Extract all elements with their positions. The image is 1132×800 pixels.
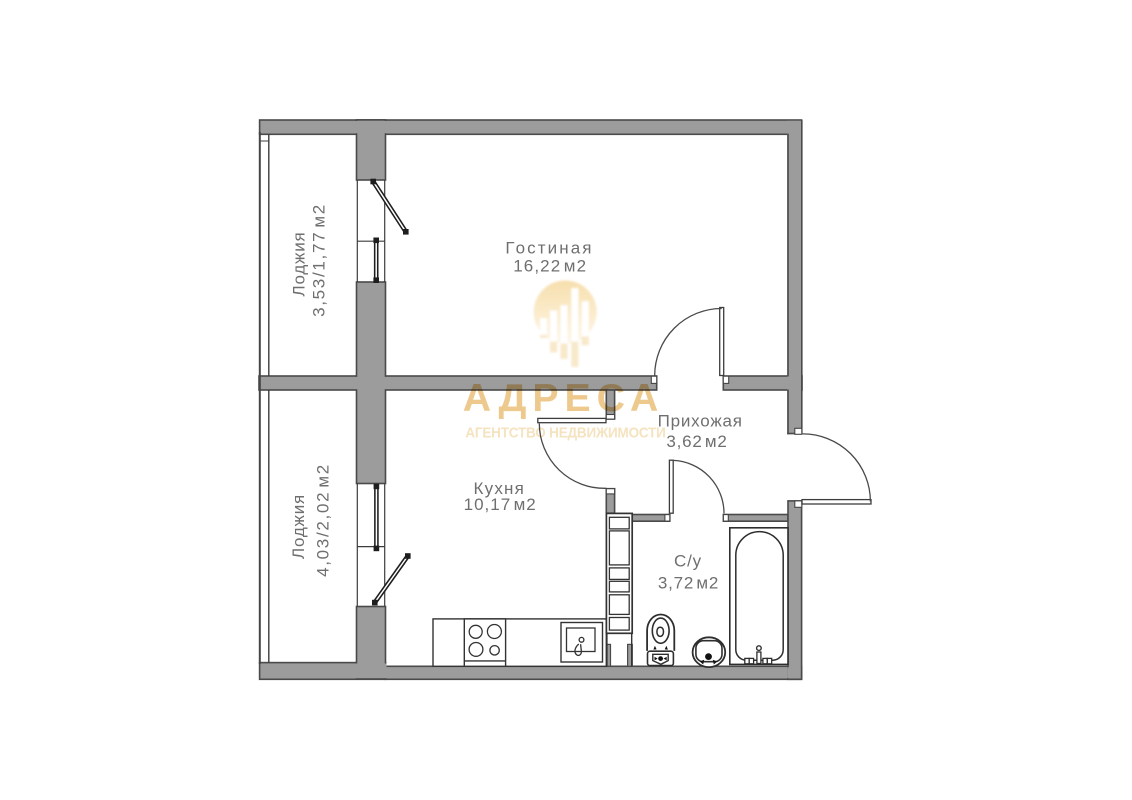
svg-text:3,72 м2: 3,72 м2 (658, 574, 719, 593)
svg-text:4,03/2,02 м2: 4,03/2,02 м2 (314, 463, 333, 577)
svg-text:3,62 м2: 3,62 м2 (666, 432, 727, 451)
svg-text:10,17 м2: 10,17 м2 (464, 495, 537, 514)
svg-text:Лоджия: Лоджия (289, 494, 308, 559)
svg-text:Гостиная: Гостиная (505, 238, 593, 257)
svg-text:АГЕНТСТВО НЕДВИЖИМОСТИ: АГЕНТСТВО НЕДВИЖИМОСТИ (465, 425, 665, 442)
svg-text:С/у: С/у (674, 551, 702, 570)
svg-text:Прихожая: Прихожая (658, 411, 743, 430)
svg-text:Лоджия: Лоджия (289, 231, 308, 296)
svg-text:3,53/1,77 м2: 3,53/1,77 м2 (310, 203, 329, 317)
svg-text:16,22 м2: 16,22 м2 (513, 256, 587, 275)
svg-text:АДРЕСА: АДРЕСА (463, 377, 665, 420)
